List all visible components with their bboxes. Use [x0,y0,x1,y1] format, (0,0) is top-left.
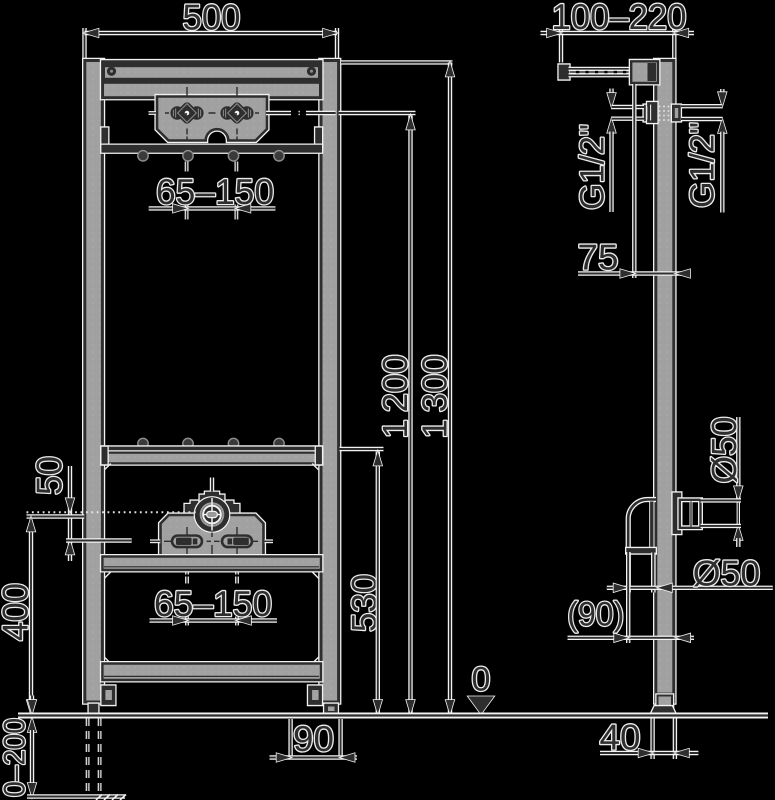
svg-text:0: 0 [472,661,491,699]
svg-text:G1/2": G1/2" [574,124,612,210]
svg-text:Ø50: Ø50 [693,553,761,594]
svg-text:40: 40 [600,717,641,758]
svg-text:0–200: 0–200 [0,718,32,797]
svg-text:Ø50: Ø50 [705,417,744,484]
svg-text:65–150: 65–150 [156,171,274,212]
svg-text:65–150: 65–150 [154,583,272,624]
svg-text:(90): (90) [567,596,624,634]
svg-text:500: 500 [183,0,241,38]
svg-text:75: 75 [578,237,619,278]
svg-text:100–220: 100–220 [552,0,687,37]
svg-text:90: 90 [293,718,334,759]
svg-text:50: 50 [29,456,70,495]
svg-text:G1/2": G1/2" [684,122,722,208]
